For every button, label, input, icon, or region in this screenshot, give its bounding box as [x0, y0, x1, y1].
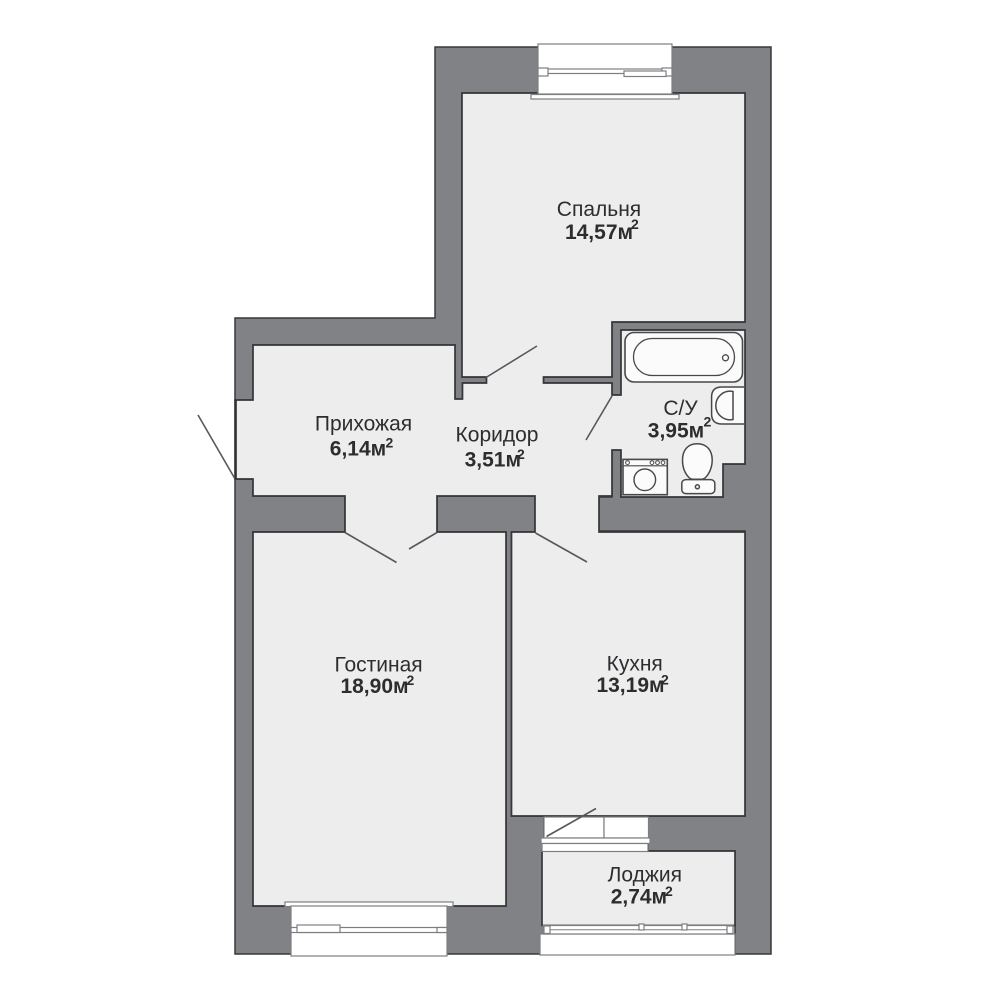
svg-text:2: 2 [704, 414, 712, 430]
svg-text:С/У: С/У [663, 397, 698, 420]
svg-text:13,19м: 13,19м [596, 674, 664, 697]
svg-text:2: 2 [386, 435, 394, 451]
svg-text:3,95м: 3,95м [648, 420, 704, 443]
svg-text:2: 2 [665, 883, 673, 899]
svg-text:2: 2 [631, 216, 639, 232]
svg-text:6,14м: 6,14м [330, 438, 386, 461]
svg-text:Коридор: Коридор [456, 424, 539, 447]
svg-text:Прихожая: Прихожая [315, 413, 412, 436]
svg-text:2: 2 [407, 672, 415, 688]
svg-text:3,51м: 3,51м [465, 449, 521, 472]
svg-text:Кухня: Кухня [607, 653, 663, 676]
svg-text:Спальня: Спальня [557, 198, 641, 221]
svg-text:2,74м: 2,74м [611, 886, 667, 909]
svg-text:2: 2 [517, 446, 525, 462]
svg-text:2: 2 [661, 672, 669, 688]
svg-text:18,90м: 18,90м [340, 675, 408, 698]
svg-text:14,57м: 14,57м [565, 221, 633, 244]
